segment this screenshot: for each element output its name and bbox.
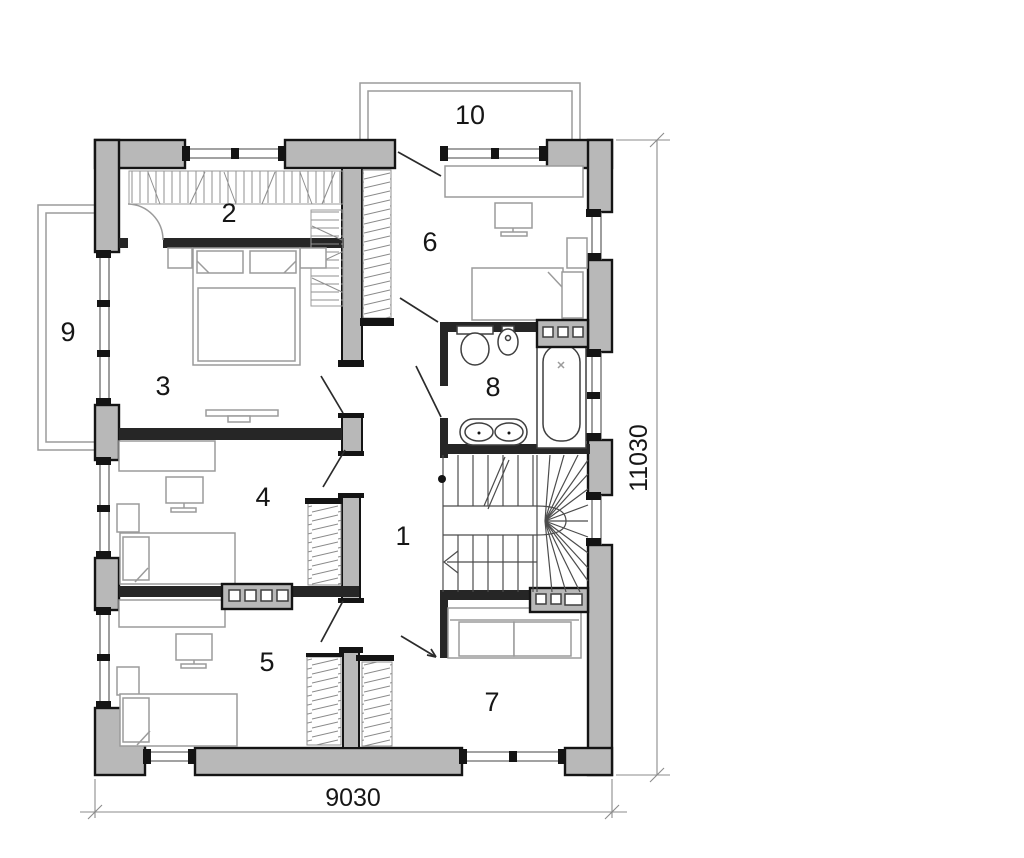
monitor-room4 — [166, 477, 203, 512]
room-label-1: 1 — [395, 521, 410, 551]
double-sink — [460, 419, 527, 445]
window-left-room4 — [96, 457, 111, 559]
window-right-stairs — [586, 492, 601, 546]
room-label-8: 8 — [485, 372, 500, 402]
wardrobe-room5 — [306, 653, 342, 745]
window-left-balcony — [96, 250, 111, 406]
bed-room5 — [117, 667, 237, 746]
desk-room6 — [445, 166, 583, 197]
window-left-room5 — [96, 607, 111, 709]
bed-room4 — [117, 504, 235, 584]
room-label-2: 2 — [221, 198, 236, 228]
dimension-width-label: 9030 — [325, 784, 381, 812]
room-label-4: 4 — [255, 482, 270, 512]
sofa — [448, 608, 581, 658]
wardrobe-room4 — [305, 498, 343, 585]
dimension-height-label: 11030 — [625, 424, 653, 492]
room-label-6: 6 — [422, 227, 437, 257]
room-label-9: 9 — [60, 317, 75, 347]
bathtub — [537, 338, 586, 448]
window-bottom-room5 — [143, 749, 196, 764]
wardrobe-room6 — [360, 170, 394, 326]
vent-block-room45 — [222, 584, 292, 609]
floor-plan-canvas: 1 2 3 4 5 6 7 8 9 10 9030 11030 — [0, 0, 1024, 858]
desk-room5 — [119, 600, 225, 627]
dimension-bottom: 9030 — [80, 779, 627, 819]
room-label-7: 7 — [484, 687, 499, 717]
room-label-10: 10 — [455, 100, 485, 130]
room-label-5: 5 — [259, 647, 274, 677]
desk-room4 — [119, 441, 215, 471]
window-right-bathroom — [586, 349, 601, 441]
monitor-room6 — [495, 203, 532, 236]
double-bed — [168, 248, 326, 365]
monitor-room5 — [176, 634, 212, 668]
toilet — [457, 326, 493, 365]
wardrobe-hall — [356, 655, 394, 746]
window-top-left — [182, 146, 286, 161]
door-arc-closet — [128, 204, 163, 240]
dimension-right: 11030 — [616, 133, 670, 782]
vent-block-bathroom — [537, 320, 588, 347]
room-label-3: 3 — [155, 371, 170, 401]
window-top-right — [440, 146, 547, 161]
window-bottom-room7 — [459, 749, 566, 764]
floor-plan-drawing: 1 2 3 4 5 6 7 8 9 10 9030 11030 — [0, 0, 1024, 858]
stairs — [438, 455, 588, 592]
dressing-table — [206, 410, 278, 422]
window-right-room6 — [586, 209, 601, 261]
bed-room6 — [472, 238, 587, 320]
